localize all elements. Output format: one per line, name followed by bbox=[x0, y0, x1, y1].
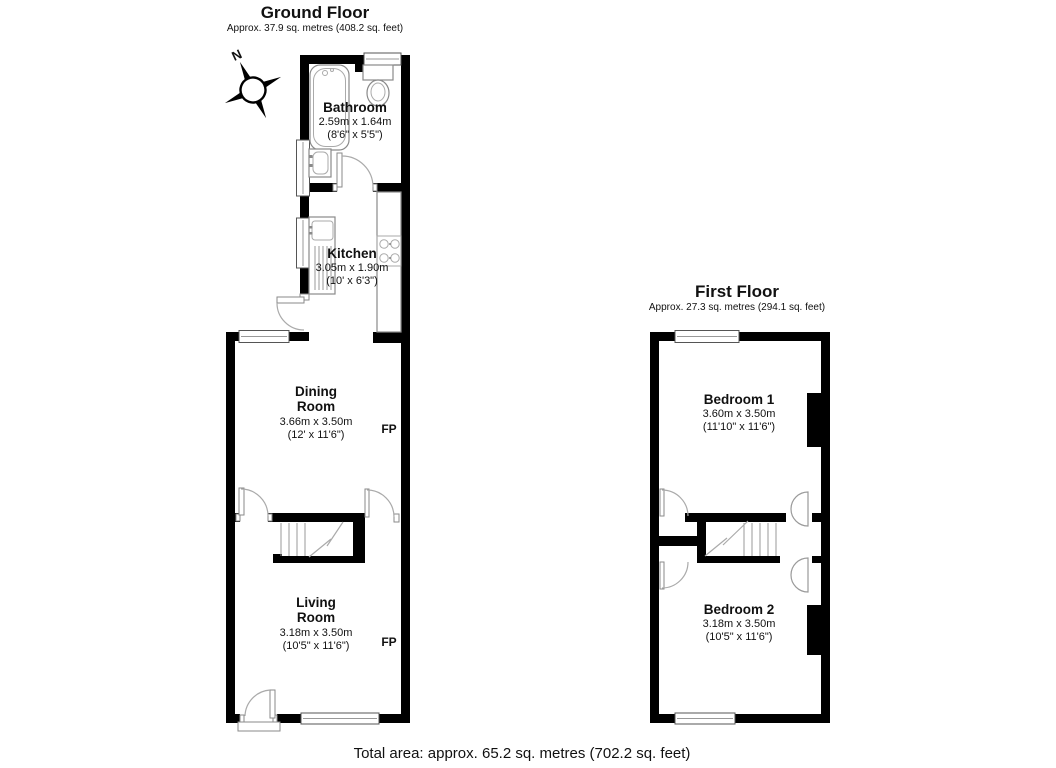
chimney-breast bbox=[807, 605, 824, 655]
wall bbox=[650, 536, 697, 546]
bedroom2-label: Bedroom 2 bbox=[704, 602, 775, 617]
wall bbox=[268, 513, 355, 522]
dining-room-label-line1: Dining bbox=[295, 384, 337, 399]
wall bbox=[373, 183, 410, 192]
door-bedroom2-left bbox=[660, 562, 688, 589]
living-room-dims-metric: 3.18m x 3.50m bbox=[280, 627, 353, 639]
bedroom2-dims-imperial: (10'5" x 11'6") bbox=[706, 631, 773, 643]
door-bedroom2-right bbox=[791, 558, 808, 592]
door-bedroom1-right bbox=[791, 492, 808, 526]
window bbox=[675, 331, 739, 725]
wall bbox=[401, 55, 410, 723]
door-side-exterior bbox=[277, 294, 309, 330]
bathroom-label: Bathroom bbox=[323, 100, 387, 115]
porch-step bbox=[238, 722, 280, 731]
staircase bbox=[705, 521, 776, 556]
wall bbox=[812, 556, 821, 563]
wall bbox=[378, 714, 410, 723]
first-floor-subtitle: Approx. 27.3 sq. metres (294.1 sq. feet) bbox=[649, 302, 825, 313]
chimney-breast bbox=[807, 393, 824, 447]
dining-room-dims-metric: 3.66m x 3.50m bbox=[280, 416, 353, 428]
living-room-label-line1: Living bbox=[296, 595, 336, 610]
wall bbox=[697, 513, 706, 563]
wall bbox=[812, 513, 821, 522]
door-bedroom1-left bbox=[660, 489, 688, 516]
bedroom1-dims-metric: 3.60m x 3.50m bbox=[703, 408, 776, 420]
fireplace-label-living: FP bbox=[381, 635, 396, 649]
first-floor-title: First Floor bbox=[695, 282, 779, 301]
bathroom-dims-metric: 2.59m x 1.64m bbox=[319, 116, 392, 128]
kitchen-dims-metric: 3.05m x 1.90m bbox=[316, 262, 389, 274]
dining-room-dims-imperial: (12' x 11'6") bbox=[288, 429, 345, 441]
kitchen-dims-imperial: (10' x 6'3") bbox=[326, 275, 378, 287]
north-label: N bbox=[229, 46, 244, 64]
door-dining-left bbox=[236, 488, 272, 521]
wall bbox=[821, 332, 830, 723]
dining-room-label-line2: Room bbox=[297, 399, 335, 414]
ground-floor-plan: Ground Floor Approx. 37.9 sq. metres (40… bbox=[205, 3, 410, 731]
door-front bbox=[238, 690, 280, 731]
staircase bbox=[281, 522, 343, 557]
ground-floor-subtitle: Approx. 37.9 sq. metres (408.2 sq. feet) bbox=[227, 23, 403, 34]
ground-floor-title: Ground Floor bbox=[261, 3, 370, 22]
total-area-label: Total area: approx. 65.2 sq. metres (702… bbox=[354, 745, 691, 762]
wall bbox=[226, 332, 235, 723]
bedroom1-label: Bedroom 1 bbox=[704, 392, 775, 407]
wall bbox=[273, 556, 365, 563]
living-room-dims-imperial: (10'5" x 11'6") bbox=[283, 640, 350, 652]
door-dining-right bbox=[365, 489, 399, 522]
kitchen-label: Kitchen bbox=[327, 246, 377, 261]
door-bathroom bbox=[333, 153, 377, 191]
wall bbox=[277, 714, 302, 723]
wall bbox=[373, 332, 401, 343]
wall bbox=[353, 513, 365, 563]
floorplan-page: Ground Floor Approx. 37.9 sq. metres (40… bbox=[0, 0, 1056, 768]
living-room-label-line2: Room bbox=[297, 610, 335, 625]
bathroom-dims-imperial: (8'6" x 5'5") bbox=[327, 129, 382, 141]
bedroom2-dims-metric: 3.18m x 3.50m bbox=[703, 618, 776, 630]
sink-basin-icon bbox=[309, 149, 331, 177]
floorplan-svg: Ground Floor Approx. 37.9 sq. metres (40… bbox=[0, 0, 1056, 768]
bedroom1-dims-imperial: (11'10" x 11'6") bbox=[703, 421, 775, 433]
compass-rose-icon: N bbox=[205, 35, 294, 131]
fireplace-label-dining: FP bbox=[381, 422, 396, 436]
wall bbox=[650, 332, 659, 723]
first-floor-plan: First Floor Approx. 27.3 sq. metres (294… bbox=[649, 282, 830, 724]
wall bbox=[697, 556, 780, 563]
